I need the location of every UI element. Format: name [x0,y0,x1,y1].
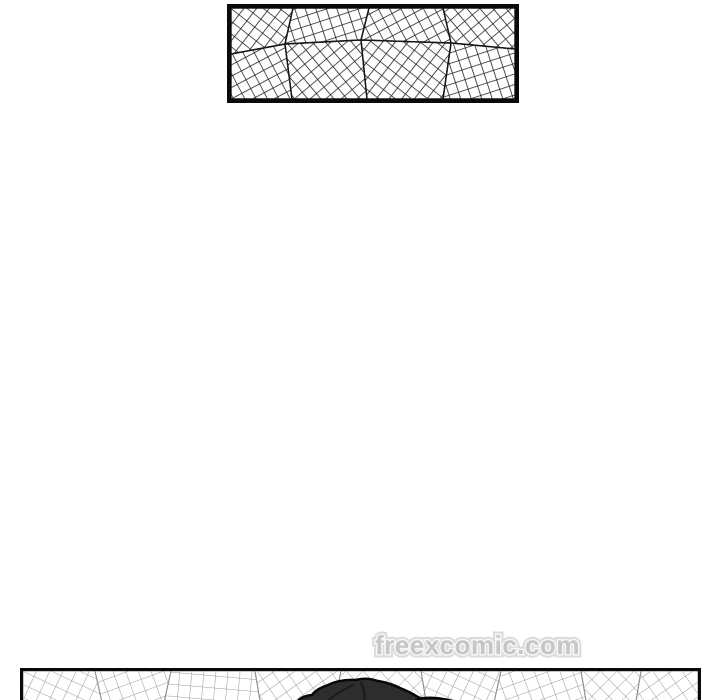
mesh-texture-dark [231,8,515,99]
mesh-texture-light [23,671,698,700]
comic-panel-top [227,4,519,103]
watermark-inner-layer: freexcomic.com [375,630,580,661]
comic-page: freexcomic.com freexcomic.com freexcomic… [0,0,720,700]
watermark-text: freexcomic.com [375,630,580,660]
mesh-patches-dark [231,8,515,99]
comic-panel-bottom [20,668,701,700]
watermark-outline-layer: freexcomic.com [375,630,580,661]
site-watermark: freexcomic.com freexcomic.com freexcomic… [375,630,580,661]
